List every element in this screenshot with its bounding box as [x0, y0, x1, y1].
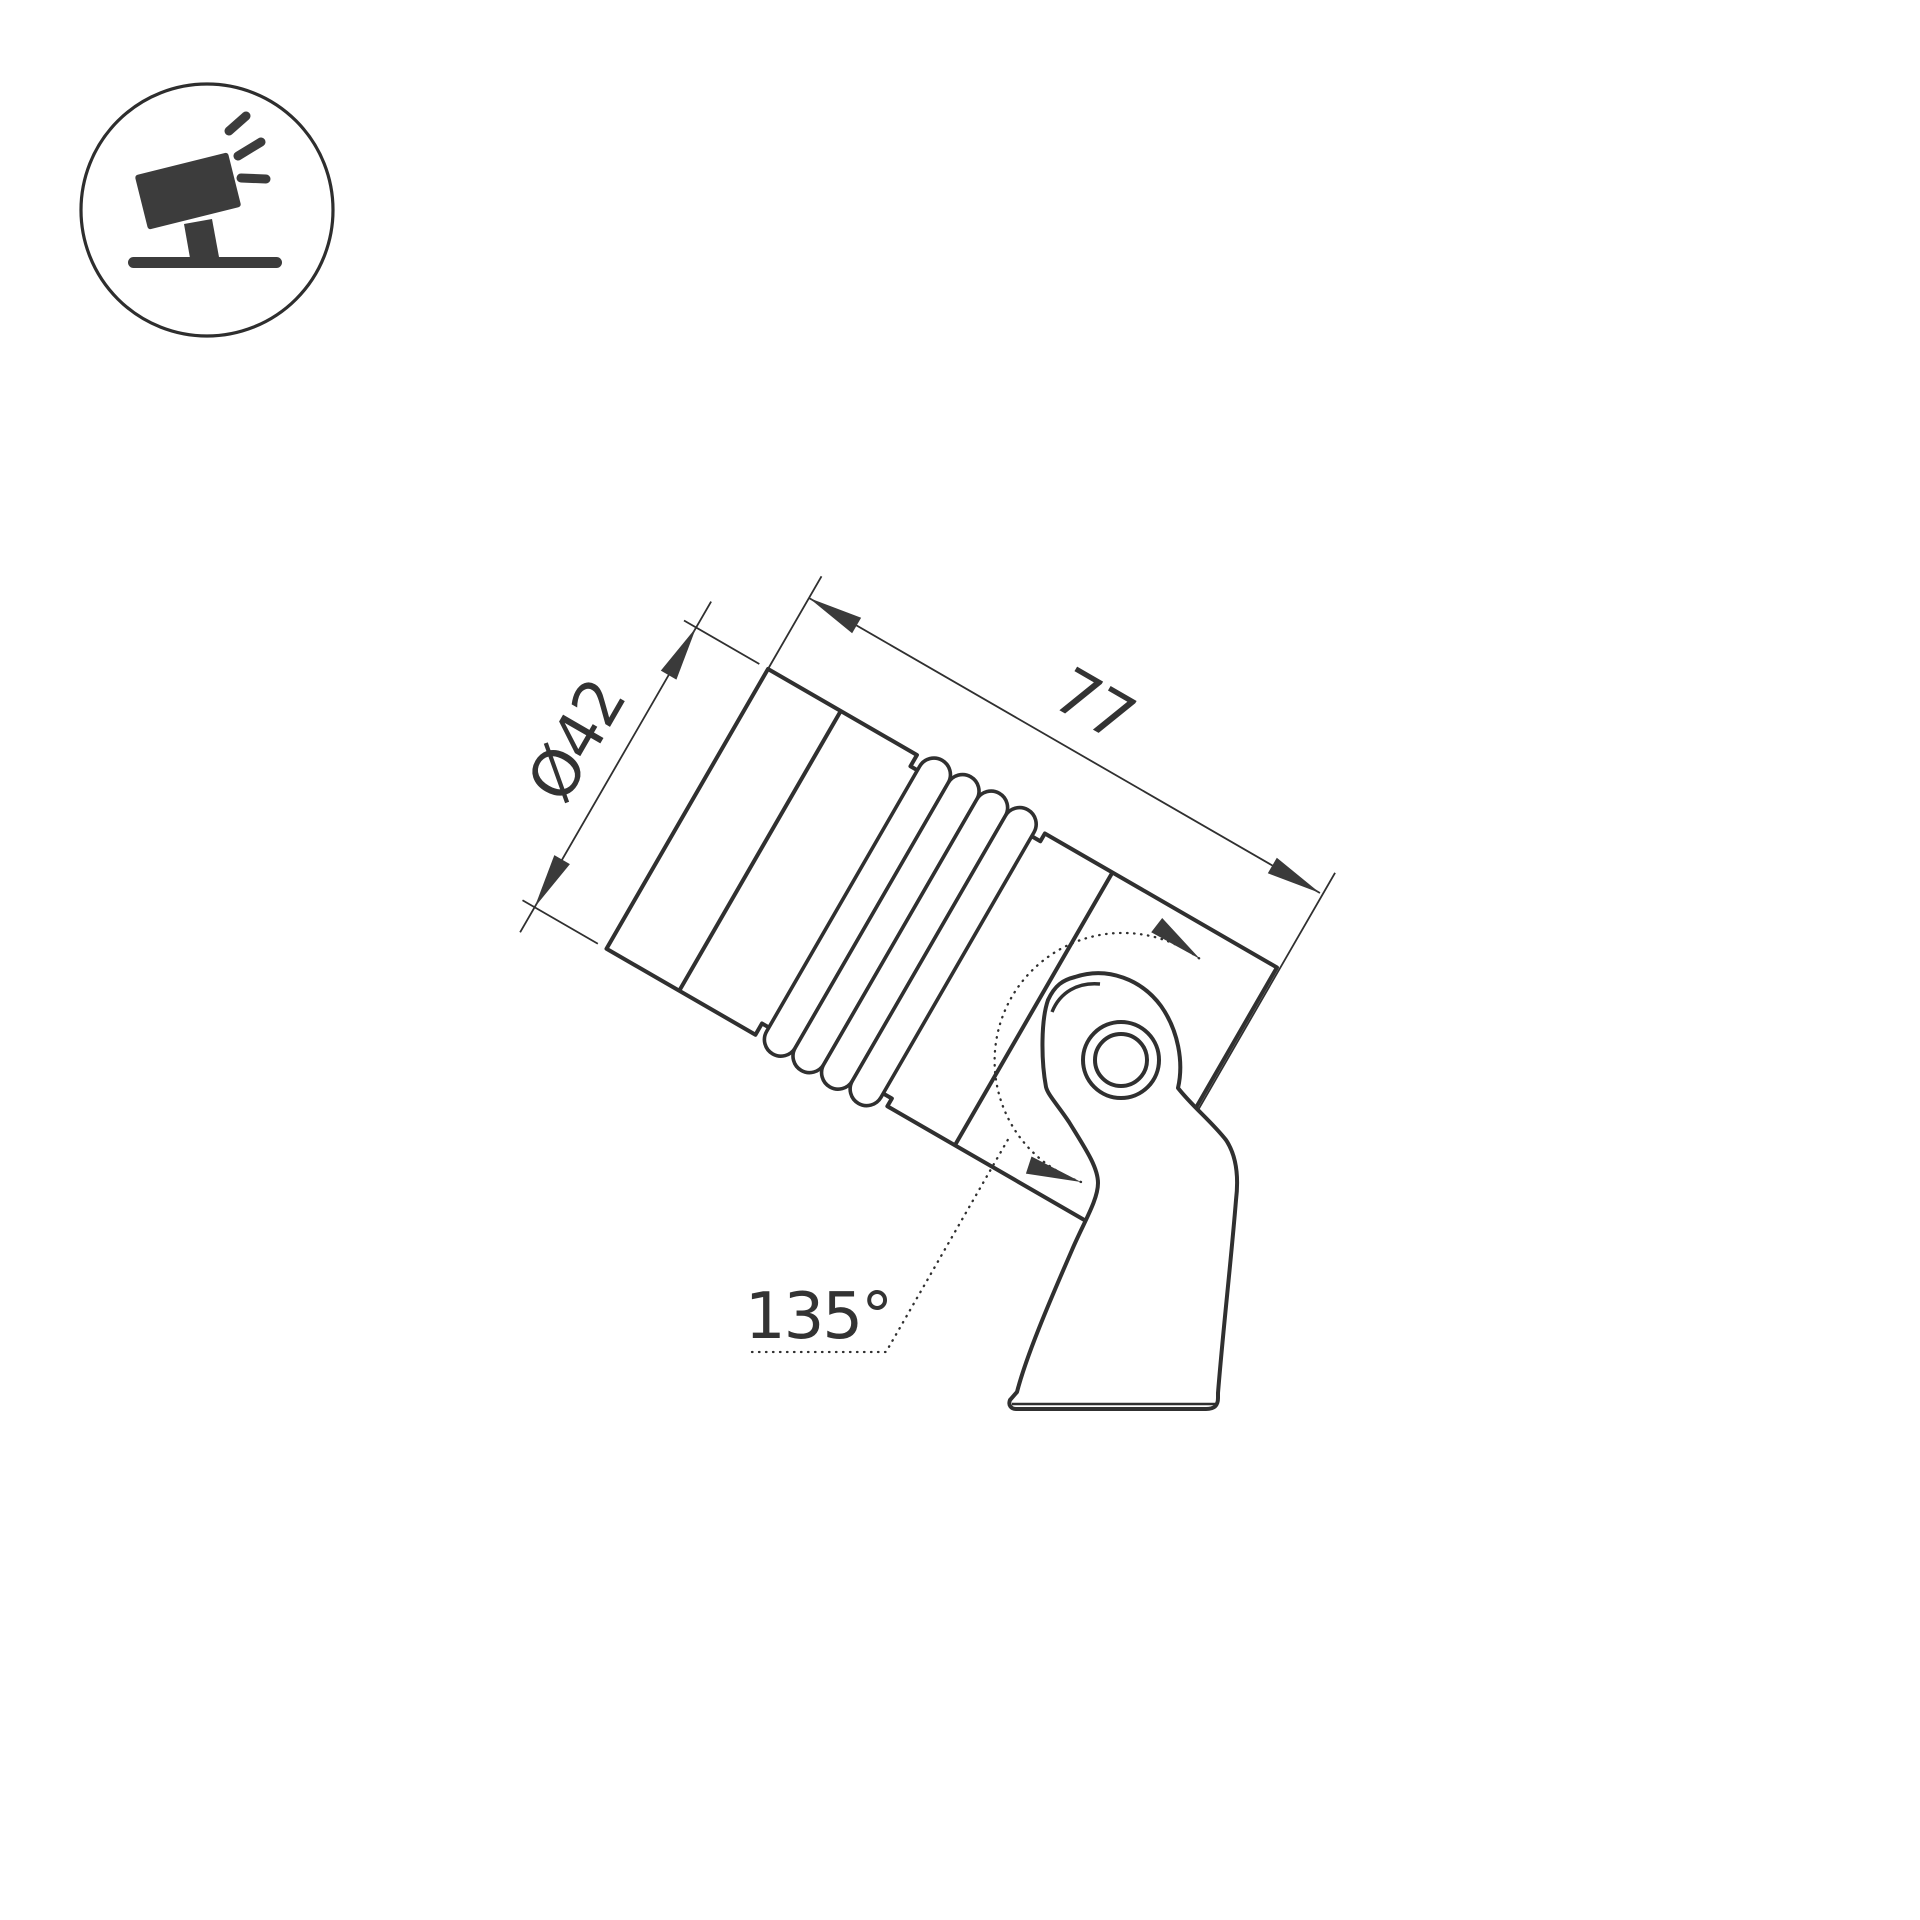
hinge-pin	[1095, 1034, 1147, 1086]
icon-ground-bar	[128, 257, 282, 268]
dim-length-arrow-left	[805, 590, 862, 633]
dimension-angle-label: 135°	[745, 1280, 891, 1354]
dim-length-arrow-right	[1268, 858, 1325, 901]
spotlight-tilt-icon	[81, 84, 333, 336]
dim-diameter-arrow-top	[661, 623, 704, 680]
product-drawing-page: Ø42 77 135°	[0, 0, 1920, 1920]
dim-diameter-arrow-bottom	[527, 855, 570, 912]
dimension-diameter-label: Ø42	[514, 668, 641, 814]
spotlight-technical-drawing: Ø42 77 135°	[0, 0, 1920, 1920]
